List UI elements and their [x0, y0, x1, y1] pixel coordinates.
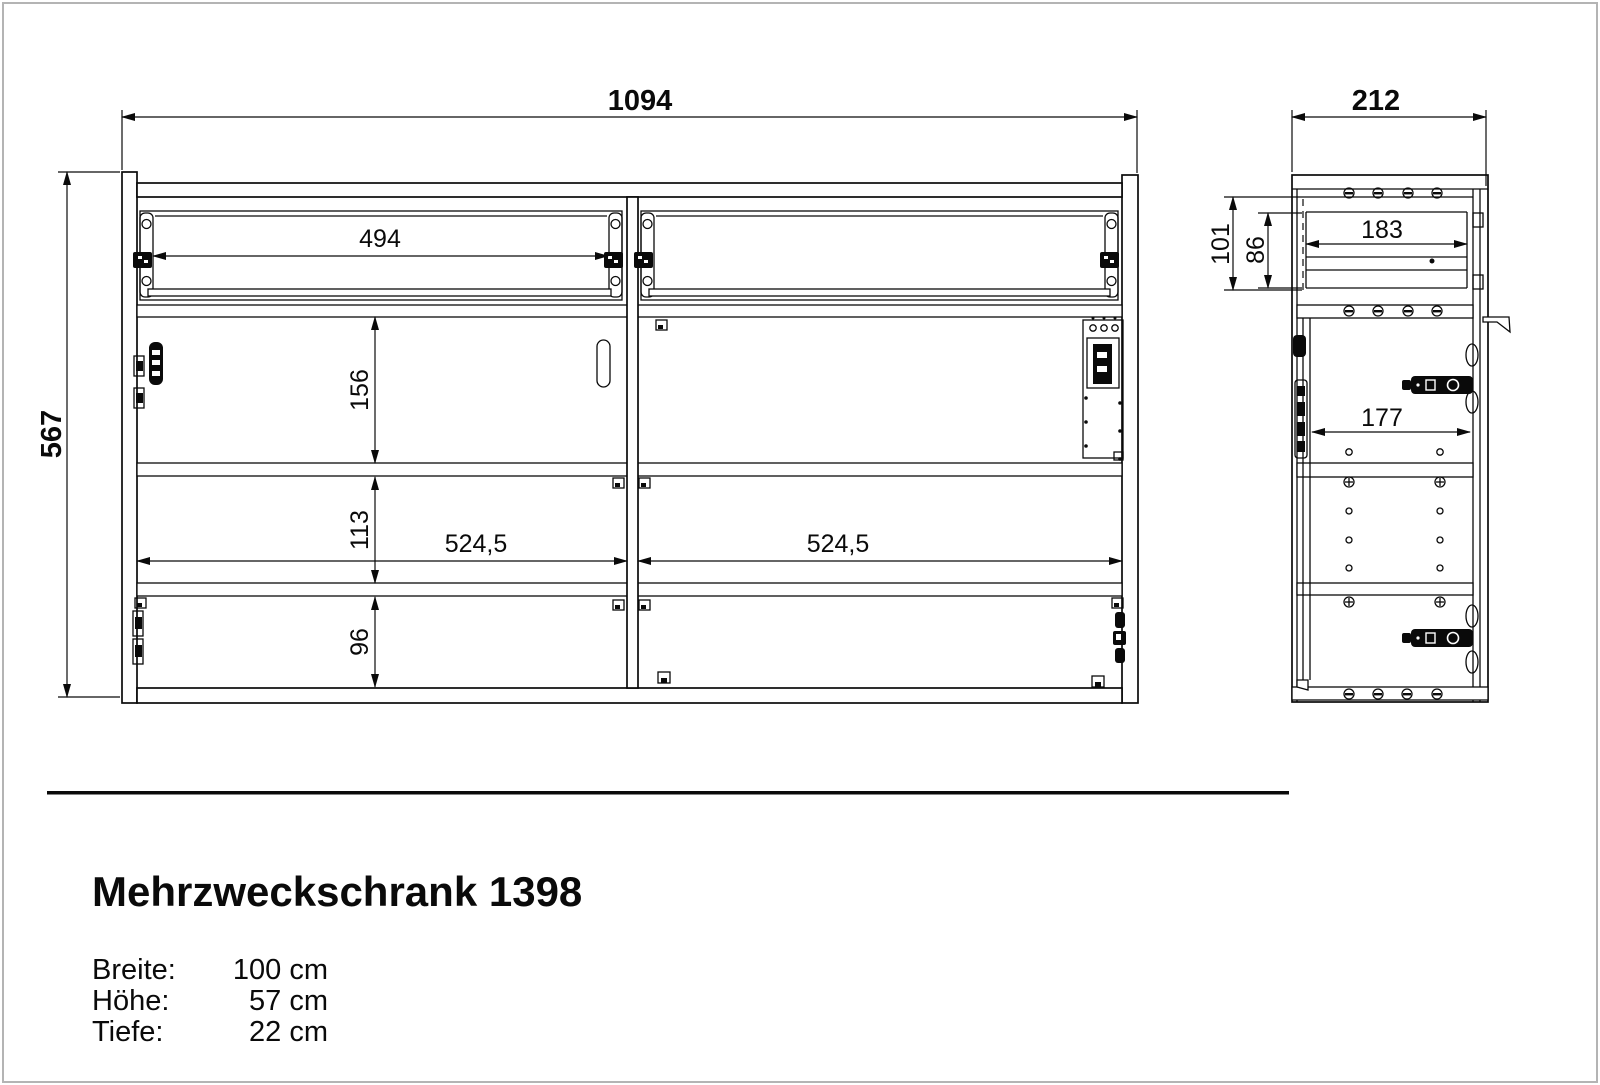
- screw-hole: [611, 220, 620, 229]
- front-drawer-right: [634, 211, 1119, 300]
- drawer-bottom-rail: [649, 289, 1110, 296]
- spec-value: 100 cm: [233, 954, 328, 986]
- drawing-page: 1094 567 494 156 113 96 524,5 524,5: [0, 0, 1600, 1085]
- screw-hole: [643, 277, 652, 286]
- front-center-divider: [627, 197, 638, 688]
- dowel-dot: [1430, 259, 1435, 264]
- side-carcass: [1292, 175, 1510, 702]
- dim-middle-compartment-height: 113: [346, 510, 374, 550]
- dim-bottom-compartment-height: 96: [346, 628, 374, 656]
- dim-drawer-opening-width: 494: [359, 225, 401, 253]
- front-top-rail: [137, 183, 1122, 197]
- hinge-arm-bottom: [1402, 629, 1473, 647]
- spec-value: 22 cm: [249, 1016, 328, 1048]
- screw-hole: [1107, 277, 1116, 286]
- dim-drawer-front-height: 86: [1242, 236, 1270, 264]
- side-shelf-lower: [1297, 583, 1473, 595]
- dim-depth: 212: [1352, 85, 1400, 117]
- dim-right-compartment-width: 524,5: [807, 530, 870, 558]
- spec-label: Breite:: [92, 954, 176, 986]
- side-board-under-drawer: [1297, 305, 1473, 318]
- info-block: Mehrzweckschrank 1398 Breite: 100 cm Höh…: [47, 791, 1289, 1048]
- screw-hole: [643, 220, 652, 229]
- front-dimensions: 1094 567 494 156 113 96 524,5 524,5: [36, 85, 1137, 697]
- screw-hole: [611, 277, 620, 286]
- product-title: Mehrzweckschrank 1398: [92, 868, 582, 915]
- dim-left-compartment-width: 524,5: [445, 530, 508, 558]
- door-handle-slot: [597, 340, 610, 387]
- front-view: 1094 567 494 156 113 96 524,5 524,5: [36, 85, 1138, 703]
- side-bottom-board: [1292, 687, 1488, 700]
- dim-drawer-zone-height: 101: [1207, 223, 1235, 265]
- spec-row-hoehe: Höhe: 57 cm: [92, 985, 328, 1017]
- spec-label: Höhe:: [92, 985, 169, 1017]
- front-left-panel: [122, 172, 137, 703]
- spec-row-tiefe: Tiefe: 22 cm: [92, 1016, 328, 1048]
- dim-top-compartment-height: 156: [346, 369, 374, 411]
- drawer-bottom-rail: [148, 289, 611, 296]
- divider-line: [47, 791, 1289, 795]
- screw-hole: [142, 220, 151, 229]
- right-door-mounting-plate: [1083, 317, 1123, 461]
- drawer-runner-clip-icon: [133, 252, 623, 268]
- left-door-hinge-upper: [134, 342, 163, 408]
- screw-hole: [142, 277, 151, 286]
- screw-hole: [1107, 220, 1116, 229]
- side-view: 212 101 86 183 177: [1207, 85, 1510, 702]
- spec-row-breite: Breite: 100 cm: [92, 954, 328, 986]
- door-hinge-clip: [1293, 335, 1306, 357]
- dim-front-height: 567: [36, 410, 68, 458]
- technical-drawing: 1094 567 494 156 113 96 524,5 524,5: [0, 0, 1600, 1085]
- right-door-hinge-lower: [1113, 612, 1126, 663]
- dim-front-width: 1094: [608, 85, 673, 117]
- front-cabinet-carcass: [122, 172, 1138, 703]
- dim-door-inner-depth: 177: [1361, 404, 1403, 432]
- spec-label: Tiefe:: [92, 1016, 163, 1048]
- side-shelf-middle: [1297, 463, 1473, 477]
- dim-drawer-depth: 183: [1361, 216, 1403, 244]
- drawer-runner-clip-icon: [634, 252, 1119, 268]
- front-bottom-panel: [137, 688, 1122, 703]
- hinge-arm-top: [1402, 376, 1473, 394]
- spec-value: 57 cm: [249, 985, 328, 1017]
